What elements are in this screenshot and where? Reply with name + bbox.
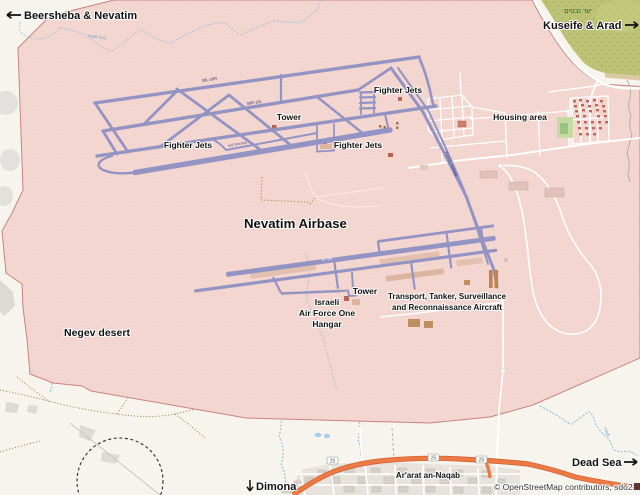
svg-text:Negev desert: Negev desert (64, 327, 130, 339)
svg-text:Housing area: Housing area (493, 112, 547, 122)
svg-text:© OpenStreetMap contributors,: © OpenStreetMap contributors, sdo216 (494, 482, 640, 492)
svg-text:and Reconnaissance Aircraft: and Reconnaissance Aircraft (392, 303, 502, 312)
svg-text:Hangar: Hangar (312, 319, 342, 329)
svg-text:Nevatim Airbase: Nevatim Airbase (244, 216, 347, 231)
svg-text:יער נבטים: יער נבטים (564, 8, 592, 15)
svg-text:Air Force One: Air Force One (299, 308, 355, 318)
svg-text:Kuseife & Arad: Kuseife & Arad (543, 20, 621, 32)
svg-text:Beersheba & Nevatim: Beersheba & Nevatim (24, 10, 137, 22)
svg-text:Israeli: Israeli (315, 297, 340, 307)
svg-text:25: 25 (431, 456, 437, 462)
svg-text:Fighter Jets: Fighter Jets (334, 140, 382, 150)
svg-text:Ar'arat an-Naqab: Ar'arat an-Naqab (396, 471, 460, 480)
svg-text:Transport, Tanker, Surveillanc: Transport, Tanker, Surveillance (388, 292, 507, 301)
svg-text:Tower: Tower (353, 286, 378, 296)
svg-text:Tower: Tower (277, 112, 302, 122)
svg-text:25: 25 (330, 459, 336, 465)
svg-text:Fighter Jets: Fighter Jets (374, 85, 422, 95)
svg-text:Dead Sea: Dead Sea (572, 457, 622, 469)
svg-text:Fighter Jets: Fighter Jets (164, 140, 212, 150)
svg-text:25: 25 (479, 458, 485, 464)
svg-text:Dimona: Dimona (256, 481, 297, 493)
